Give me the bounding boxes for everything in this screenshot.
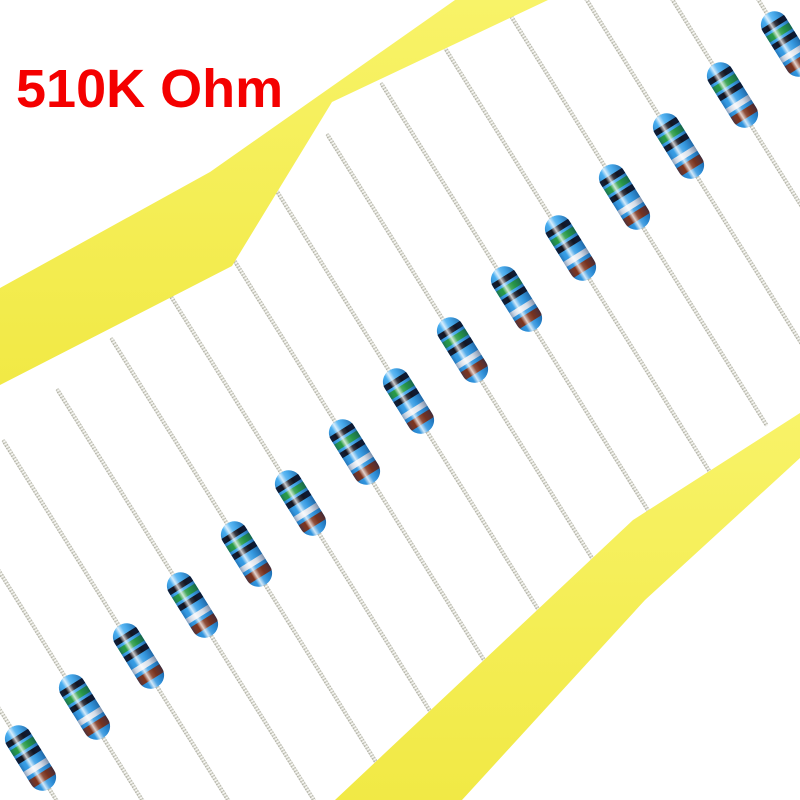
adhesive-tapes [0,0,800,800]
resistance-label: 510K Ohm [16,58,283,120]
product-photo: 510K Ohm [0,0,800,800]
bottom-tape-strip [335,413,800,800]
